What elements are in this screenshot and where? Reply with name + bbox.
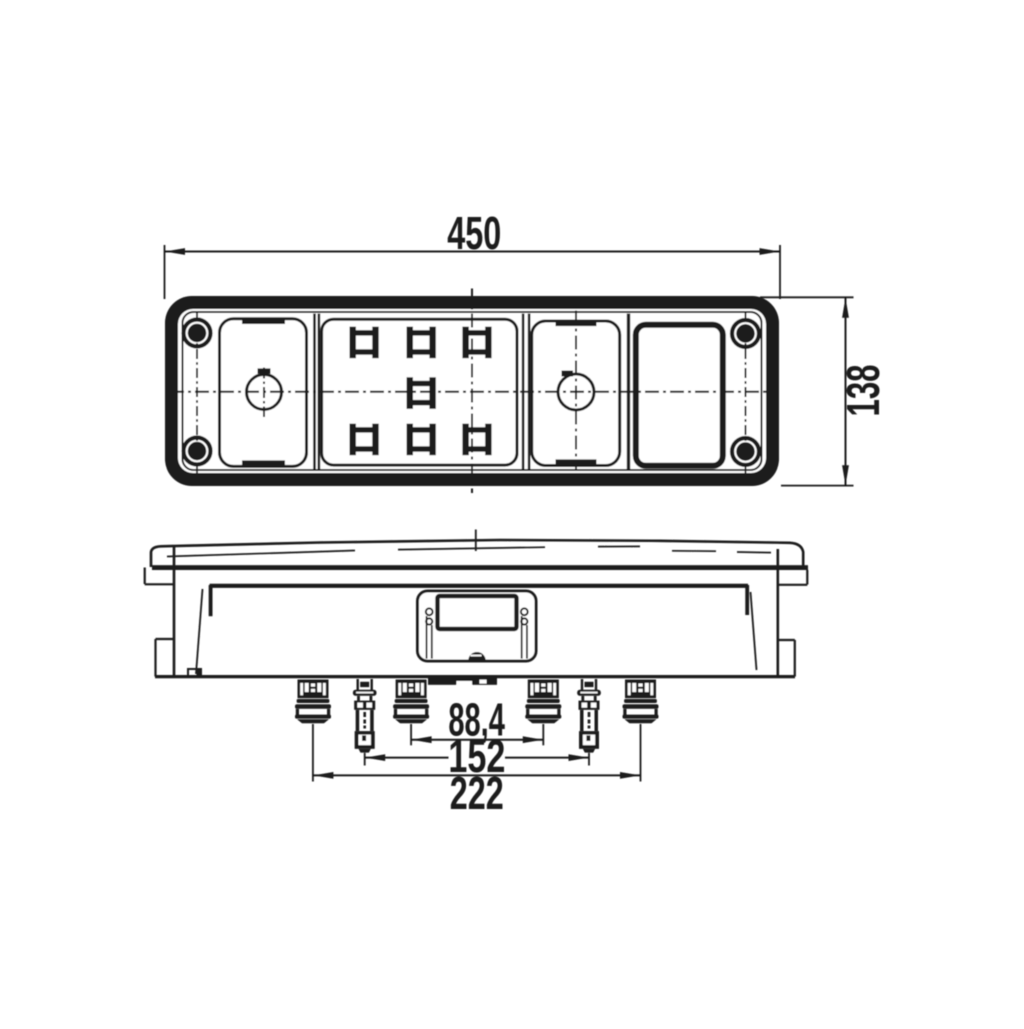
svg-text:222: 222: [450, 767, 504, 819]
svg-text:450: 450: [447, 207, 501, 259]
svg-text:138: 138: [837, 365, 889, 417]
